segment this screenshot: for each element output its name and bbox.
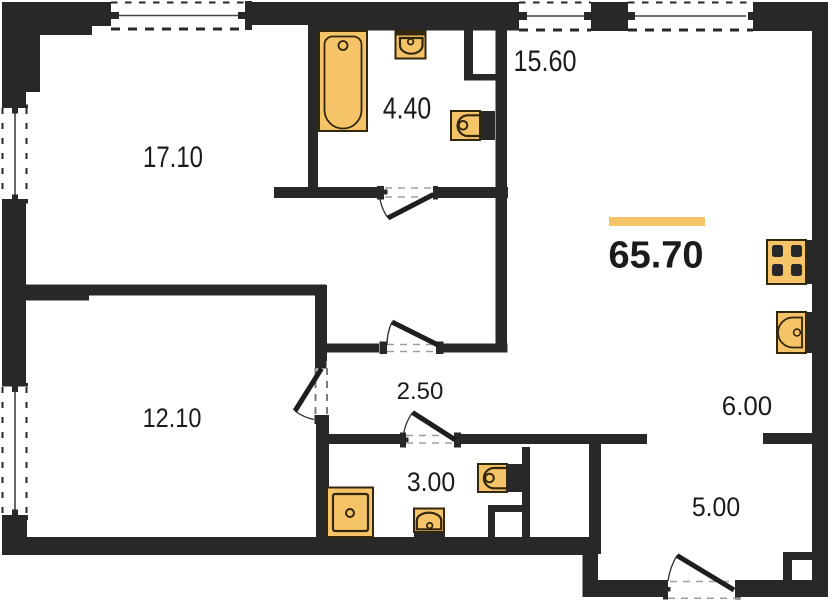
svg-text:5.00: 5.00 bbox=[692, 493, 740, 522]
svg-text:6.00: 6.00 bbox=[722, 390, 772, 421]
svg-text:3.00: 3.00 bbox=[407, 468, 455, 497]
svg-text:17.10: 17.10 bbox=[143, 139, 203, 173]
svg-text:4.40: 4.40 bbox=[383, 91, 431, 125]
svg-text:15.60: 15.60 bbox=[513, 44, 576, 78]
svg-text:65.70: 65.70 bbox=[608, 234, 703, 276]
svg-text:2.50: 2.50 bbox=[397, 378, 444, 405]
svg-text:12.10: 12.10 bbox=[143, 404, 202, 434]
